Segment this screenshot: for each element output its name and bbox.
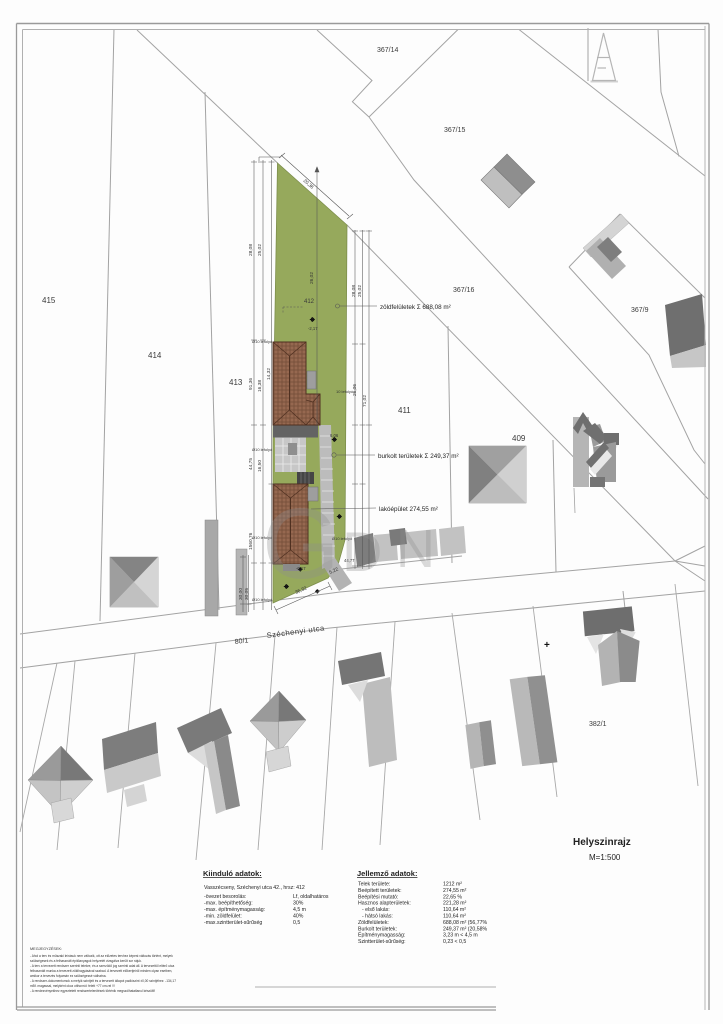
svg-text:- hátsó lakás:: - hátsó lakás:: [362, 914, 393, 920]
svg-text:lakóépület 274,55 m²: lakóépület 274,55 m²: [379, 506, 438, 513]
svg-text:mBf. magassal, melyként okoz o: mBf. magassal, melyként okoz otthonról: …: [30, 984, 115, 988]
svg-text:-övezet besorolás:: -övezet besorolás:: [204, 894, 246, 900]
svg-text:367/15: 367/15: [444, 127, 466, 134]
svg-text:Vasszécseny, Széchenyi utca 42: Vasszécseny, Széchenyi utca 42., hrsz: 4…: [204, 885, 305, 891]
svg-text:413: 413: [229, 378, 243, 387]
svg-text:Ø10 lefolyó: Ø10 lefolyó: [252, 447, 273, 452]
svg-text:- A rendezvényekhez egyeztetet: - A rendezvényekhez egyeztetett rendszer…: [30, 989, 155, 993]
svg-text:414: 414: [148, 351, 162, 360]
svg-text:Burkolt területek:: Burkolt területek:: [358, 926, 397, 932]
svg-text:burkolt területek Σ 249,37 m²: burkolt területek Σ 249,37 m²: [378, 453, 459, 460]
svg-text:1212 m²: 1212 m²: [443, 882, 462, 888]
svg-text:felhasznált munka a tervezett: felhasznált munka a tervezett zöldhagyás…: [30, 969, 172, 973]
svg-text:30,00: 30,00: [238, 588, 244, 600]
svg-text:Építménymagasság:: Építménymagasság:: [358, 932, 405, 939]
svg-text:249,37 m² (20,58%: 249,37 m² (20,58%: [443, 926, 488, 932]
svg-text:- Ahol a terv és műszaki leírá: - Ahol a terv és műszaki leírásuk nem vá…: [30, 954, 173, 958]
svg-text:zöldfelületek Σ 688,08 m²: zöldfelületek Σ 688,08 m²: [380, 304, 451, 311]
svg-text:-max.szintterület-sűrűség: -max.szintterület-sűrűség: [204, 920, 262, 926]
svg-text:71,02: 71,02: [362, 395, 368, 407]
svg-text:Helyszinrajz: Helyszinrajz: [573, 837, 631, 848]
svg-text:3,23 m < 4,5 m: 3,23 m < 4,5 m: [443, 933, 478, 939]
svg-text:221,28 m²: 221,28 m²: [443, 901, 467, 907]
svg-text:Hasznos alapterületek:: Hasznos alapterületek:: [358, 901, 411, 907]
svg-text:MEGJEGYZÉSEK:: MEGJEGYZÉSEK:: [30, 946, 62, 951]
svg-text:367/16: 367/16: [453, 287, 475, 294]
svg-text:4,5 m: 4,5 m: [293, 907, 306, 913]
svg-text:G: G: [262, 488, 340, 600]
svg-text:367/9: 367/9: [631, 307, 649, 314]
svg-text:Jellemző adatok:: Jellemző adatok:: [357, 869, 417, 878]
svg-text:30%: 30%: [293, 901, 304, 907]
svg-text:-max. építménymagasság:: -max. építménymagasság:: [204, 907, 265, 913]
svg-text:411: 411: [398, 406, 411, 415]
svg-text:6,06: 6,06: [330, 433, 339, 438]
svg-text:16,50: 16,50: [257, 460, 263, 472]
svg-text:25,02: 25,02: [257, 244, 263, 256]
svg-text:D: D: [342, 520, 382, 583]
svg-text:0,5: 0,5: [293, 920, 300, 926]
svg-text:382/1: 382/1: [589, 721, 607, 728]
svg-text:- A rendszer-dokumentumok a me: - A rendszer-dokumentumok a melyik szint…: [30, 979, 176, 983]
svg-text:- A terv a tervezett rendszer: - A terv a tervezett rendszer szerinti t…: [30, 964, 174, 968]
svg-text:M=1:500: M=1:500: [589, 853, 621, 862]
svg-text:22,65 %: 22,65 %: [443, 894, 462, 900]
svg-text:amikor a tervezés folyamán ez: amikor a tervezés folyamán ez szükségess…: [30, 974, 106, 978]
svg-text:415: 415: [42, 296, 56, 305]
svg-text:110,64 m²: 110,64 m²: [443, 914, 466, 920]
svg-text:- első lakás:: - első lakás:: [362, 907, 390, 913]
svg-text:Szintterület-sűrűség:: Szintterület-sűrűség:: [358, 939, 406, 945]
svg-text:367/14: 367/14: [377, 47, 399, 54]
svg-text:Zöldfelületek:: Zöldfelületek:: [358, 920, 389, 926]
svg-text:-min. zöldfelület:: -min. zöldfelület:: [204, 914, 242, 920]
svg-text:0,23 < 0,5: 0,23 < 0,5: [443, 939, 466, 945]
svg-text:412: 412: [304, 299, 315, 305]
svg-text:409: 409: [512, 434, 526, 443]
svg-text:Ø10 lefolyó: Ø10 lefolyó: [252, 339, 273, 344]
svg-text:274,55 m²: 274,55 m²: [443, 888, 467, 894]
svg-text:16,38: 16,38: [257, 380, 263, 392]
svg-text:Kiinduló adatok:: Kiinduló adatok:: [203, 869, 262, 878]
svg-text:91,36: 91,36: [248, 378, 254, 390]
svg-text:40%: 40%: [293, 914, 304, 920]
svg-text:+: +: [544, 640, 550, 651]
svg-text:Beépített területek:: Beépített területek:: [358, 888, 402, 894]
svg-text:110,64 m²: 110,64 m²: [443, 907, 466, 913]
svg-text:688,08 m² (56,77%: 688,08 m² (56,77%: [443, 920, 488, 926]
svg-text:28,08: 28,08: [351, 285, 357, 297]
svg-text:10 lefolyó: 10 lefolyó: [336, 389, 354, 394]
svg-text:-2,17: -2,17: [308, 326, 318, 331]
svg-text:szükségesek és a felhasznált é: szükségesek és a felhasznált építőanyago…: [30, 959, 142, 963]
svg-text:44,75: 44,75: [248, 458, 254, 470]
svg-text:Beépítési mutató:: Beépítési mutató:: [358, 894, 398, 900]
svg-text:30,05: 30,05: [244, 588, 250, 600]
svg-text:-max. beépíthetőség:: -max. beépíthetőség:: [204, 901, 253, 907]
svg-text:14,32: 14,32: [266, 368, 272, 380]
svg-text:N: N: [396, 519, 435, 579]
svg-text:Lf, oldalhatáros: Lf, oldalhatáros: [293, 894, 329, 900]
svg-text:28,08: 28,08: [248, 244, 254, 256]
svg-text:Telek területe:: Telek területe:: [358, 882, 390, 888]
svg-text:26,02: 26,02: [309, 272, 315, 284]
svg-text:25,02: 25,02: [357, 285, 363, 297]
